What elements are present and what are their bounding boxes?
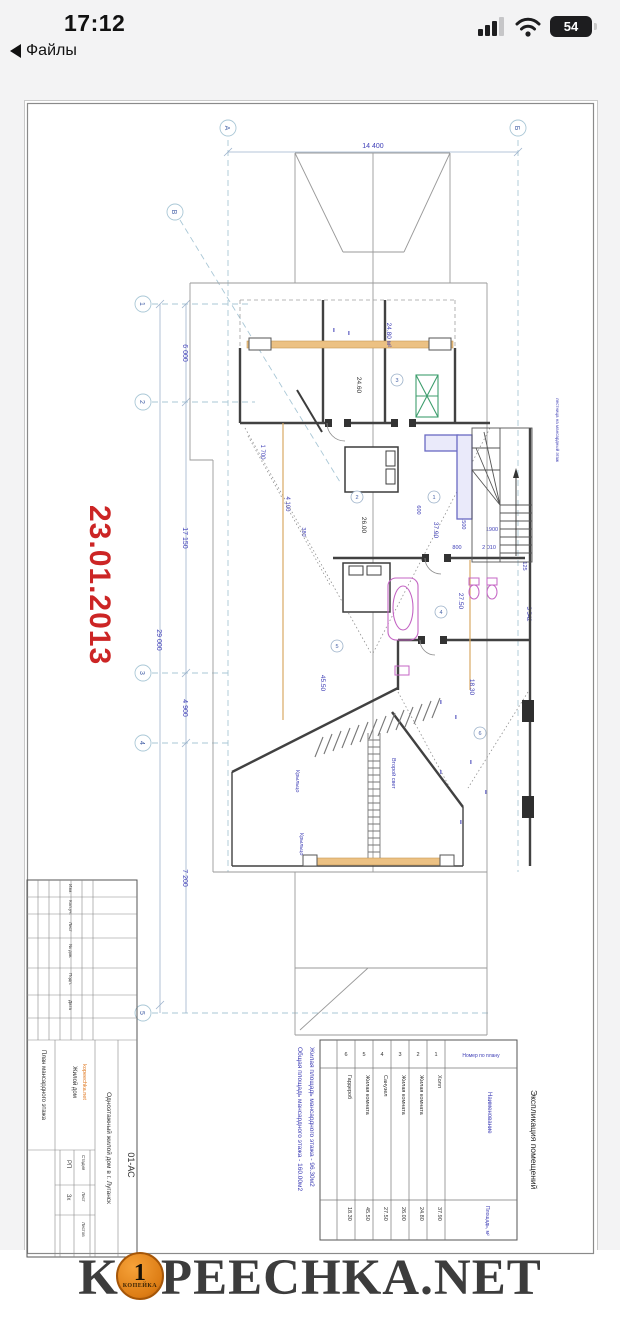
row-num: 6 [344, 1052, 347, 1058]
axis-label: 4 [138, 741, 145, 745]
row-name: Жилая комната [400, 1075, 406, 1116]
explication-table: Экспликация помещений Номер по плану Наи… [320, 1040, 539, 1240]
room-num: 3 [395, 378, 398, 384]
porch-rail [303, 855, 454, 866]
kopeechka-watermark: K 1 КОПЕЙКА PEECHKA.NET [0, 1252, 620, 1304]
row-area: 24.80 [418, 1207, 424, 1221]
watermark-suffix: PEECHKA.NET [161, 1254, 542, 1302]
table-header-area: Площадь, м² [484, 1206, 490, 1236]
sofa [425, 435, 472, 519]
second-light-label: Второй свет [390, 758, 397, 789]
axis-label: Б [513, 126, 520, 131]
grid-axes [135, 120, 526, 1021]
row-num: 2 [416, 1052, 419, 1058]
object-name: Жилой дом [71, 1066, 78, 1098]
dim-width: 14 400 [362, 143, 384, 150]
dim-seg: 7 200 [181, 869, 188, 887]
row-num: 3 [398, 1052, 401, 1058]
bed-double-2 [343, 563, 390, 612]
roof-hatching [315, 698, 440, 757]
dim-r: 2 010 [482, 545, 496, 551]
list-label: Лист [81, 1192, 86, 1202]
room-num: 6 [478, 731, 481, 737]
stamp-col: № док. [68, 944, 73, 958]
axis-label: А [223, 126, 230, 131]
porch-label: Крыльцо [294, 770, 300, 792]
dim-seg: 4 900 [181, 699, 188, 717]
date-stamp: 23.01.2013 [83, 505, 116, 665]
table-header-num: Номер по плану [462, 1053, 500, 1059]
row-name: Санузел [382, 1075, 388, 1096]
coin-value: 1 [134, 1263, 146, 1283]
room-num: 2 [355, 495, 358, 501]
list-value: 3х [65, 1194, 71, 1200]
staircase [472, 428, 532, 562]
stamp-col: Лист [68, 922, 73, 932]
stair-note: лестница на мансардный этаж [555, 398, 561, 462]
area-room3: 26.00 [360, 517, 367, 534]
row-area: 18.30 [346, 1207, 352, 1221]
area-notes: Жилая площадь мансардного этажа - 96.30м… [296, 1047, 315, 1191]
stage-value: РП [65, 1160, 71, 1168]
room-num: 1 [432, 495, 435, 501]
sheet-name: План мансардного этажа [40, 1050, 46, 1121]
porch-label: Крыльцо [298, 833, 304, 855]
coin-logo: 1 КОПЕЙКА [116, 1252, 164, 1300]
table-title: Экспликация помещений [529, 1090, 539, 1190]
row-name: Холл [436, 1075, 442, 1088]
row-name: Жилая комната [418, 1075, 424, 1116]
area-san: 27.50 [457, 593, 464, 610]
row-num: 1 [434, 1052, 437, 1058]
watermark-prefix: K [78, 1254, 119, 1302]
dimension-texts: 14 400 29 000 6 000 17 150 4 900 7 200 1… [155, 143, 531, 887]
row-name: Жилая комната [364, 1075, 370, 1116]
wardrobe [416, 375, 438, 417]
attic-ladder-line [297, 390, 322, 432]
axis-label: 1 [138, 302, 145, 306]
grid-axis-labels: А Б В 1 2 3 4 5 [138, 126, 520, 1015]
doc-code: 01-АС [126, 1152, 136, 1178]
row-area: 27.50 [382, 1207, 388, 1221]
stamp-col: Кол.уч. [68, 900, 73, 915]
stage-label: Стадия [81, 1155, 86, 1171]
dim-seg: 6 000 [181, 344, 188, 362]
room-number-bubbles [331, 374, 486, 739]
bed-double-1 [345, 447, 398, 492]
dim-total: 29 000 [155, 629, 162, 651]
room-num: 4 [439, 610, 442, 616]
row-num: 5 [362, 1052, 365, 1058]
stamp-col: Подп. [68, 973, 73, 985]
room-num: 5 [335, 644, 338, 650]
coin-label: КОПЕЙКА [123, 1283, 157, 1289]
table-header-name: Наименование [486, 1092, 492, 1134]
axis-label: В [170, 210, 177, 215]
balcony-rail [247, 338, 453, 350]
note-living-area: Жилая площадь мансардного этажа - 96.30м… [308, 1047, 315, 1187]
floor-plan-drawing: А Б В 1 2 3 4 5 14 400 29 000 6 000 17 1… [0, 0, 620, 1340]
title-block: Изм. Кол.уч. Лист № док. Подп. Дата 01-А… [27, 880, 137, 1257]
axis-label: 3 [138, 671, 145, 675]
site-watermark-text: kopeechka.net [81, 1064, 87, 1100]
dim-r: 125 [521, 561, 527, 570]
shaft-ladder [368, 733, 380, 858]
area-room2b: 24.60 [355, 377, 362, 394]
area-room5: 45.50 [319, 675, 326, 692]
row-num: 4 [380, 1052, 383, 1058]
dim-r: 800 [452, 545, 461, 551]
listov-label: Листов [81, 1222, 86, 1237]
bathtub [388, 578, 418, 640]
row-area: 26.00 [400, 1207, 406, 1221]
row-name: Гардероб [346, 1075, 352, 1099]
stamp-col: Дата [68, 1000, 73, 1010]
dim-r: 600 [415, 505, 421, 514]
stamp-col: Изм. [68, 884, 73, 894]
dimension-lines [156, 148, 522, 1013]
chimney-blocks [522, 700, 534, 818]
dim-r: 1900 [486, 527, 498, 533]
axis-label: 5 [138, 1011, 145, 1015]
roof-outline [190, 153, 487, 1035]
row-area: 45.50 [364, 1207, 370, 1221]
dim-seg: 17 150 [181, 527, 188, 549]
plan-text-labels: Крыльцо Крыльцо Второй свет лестница на … [294, 398, 561, 855]
area-hall: 37.90 [432, 522, 439, 539]
axis-label: 2 [138, 400, 145, 404]
area-room2: 24.80 м² [385, 323, 392, 349]
area-gard: 18.30 [468, 679, 475, 696]
note-total-area: Общая площадь мансардного этажа - 160.00… [296, 1047, 304, 1191]
row-area: 37.90 [436, 1207, 442, 1221]
project-name: Одноэтажный жилой дом в г. Луганск [105, 1092, 113, 1204]
